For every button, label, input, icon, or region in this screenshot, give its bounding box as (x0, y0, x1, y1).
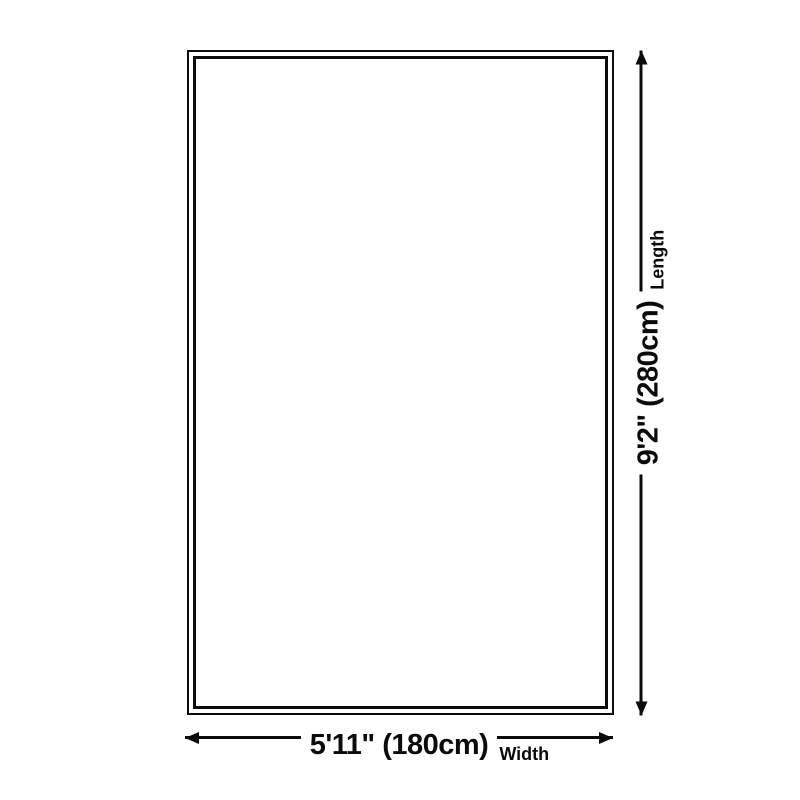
length-arrow-top-segment: Length (625, 50, 673, 291)
arrow-up-icon (635, 50, 647, 64)
width-arrow-right-segment: Width (497, 721, 613, 769)
dimension-line (497, 736, 613, 739)
rug-inner-border (193, 56, 608, 709)
length-axis-label: Length (649, 230, 669, 290)
arrow-right-icon (599, 732, 613, 744)
width-dimension: 5'11" (180cm) Width (185, 721, 613, 769)
width-axis-label: Width (499, 745, 549, 765)
rug-size-diagram: 5'11" (180cm) Width 9'2" (280cm) Length (0, 0, 800, 800)
dimension-line (640, 50, 643, 291)
width-arrow-left-segment (185, 721, 301, 769)
length-arrow-bottom-segment (625, 474, 673, 715)
dimension-line (640, 474, 643, 715)
dimension-line (185, 736, 301, 739)
length-dimension: 9'2" (280cm) Length (625, 51, 673, 716)
rug-outline (187, 50, 614, 715)
width-value: 5'11" (180cm) (301, 721, 498, 769)
length-value: 9'2" (280cm) (625, 292, 673, 475)
length-dimension-assembly: 9'2" (280cm) Length (625, 51, 673, 716)
